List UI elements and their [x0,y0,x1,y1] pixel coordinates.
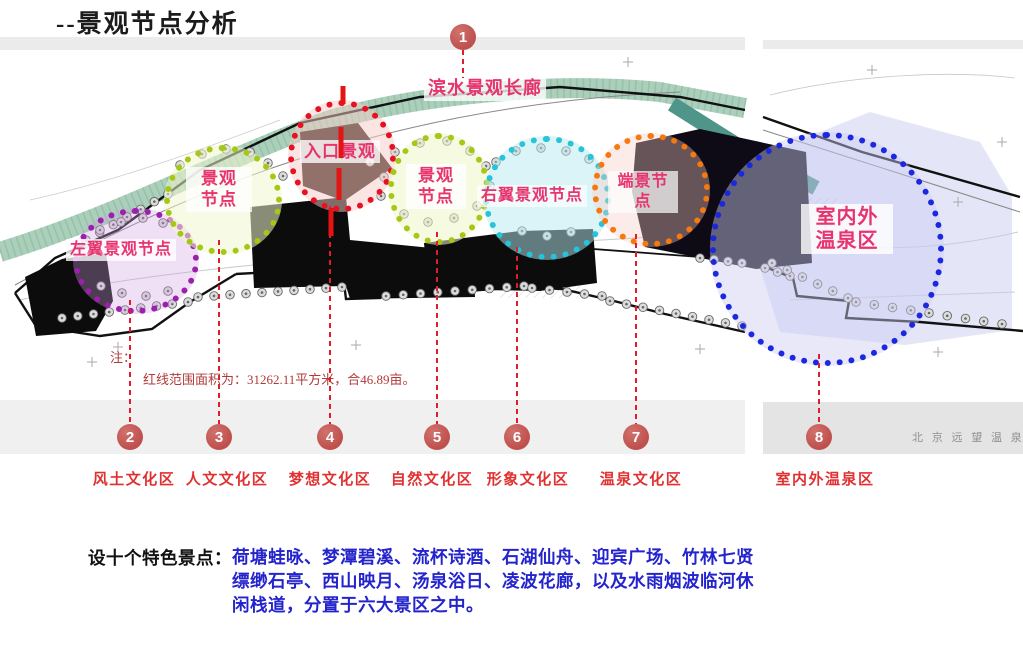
marker-3: 3 [206,424,232,450]
zone-label-8: 室内外温泉区 [775,468,874,489]
zone-label-4: 梦想文化区 [289,468,372,489]
marker-6: 6 [504,424,530,450]
zone-label-5: 自然文化区 [391,468,474,489]
feature-spots-paragraph: 设十个特色景点： 荷塘蛙咏、梦潭碧溪、流杯诗酒、石湖仙舟、迎宾广场、竹林七贤 缥… [88,545,754,617]
feature-spots-body: 荷塘蛙咏、梦潭碧溪、流杯诗酒、石湖仙舟、迎宾广场、竹林七贤 缥缈石亭、西山映月、… [232,545,754,617]
marker-8: 8 [806,424,832,450]
marker-2: 2 [117,424,143,450]
zone-label-2: 风土文化区 [93,468,176,489]
zone-label-6: 形象文化区 [487,468,570,489]
entrance-axis-marks [331,86,343,236]
marker-5: 5 [424,424,450,450]
marker-7: 7 [623,424,649,450]
zone-label-3: 人文文化区 [186,468,269,489]
marker-4: 4 [317,424,343,450]
red-dashed-leaders [130,50,819,424]
feature-spots-prefix: 设十个特色景点： [88,545,232,570]
zone-label-7: 温泉文化区 [600,468,683,489]
page-title: --景观节点分析 [56,4,239,40]
marker-1: 1 [450,24,476,50]
slide: 滨水景观长廊 左翼景观节点 景观 节点 入口景观 景观 节点 右翼景观节点 端景… [0,0,1023,655]
